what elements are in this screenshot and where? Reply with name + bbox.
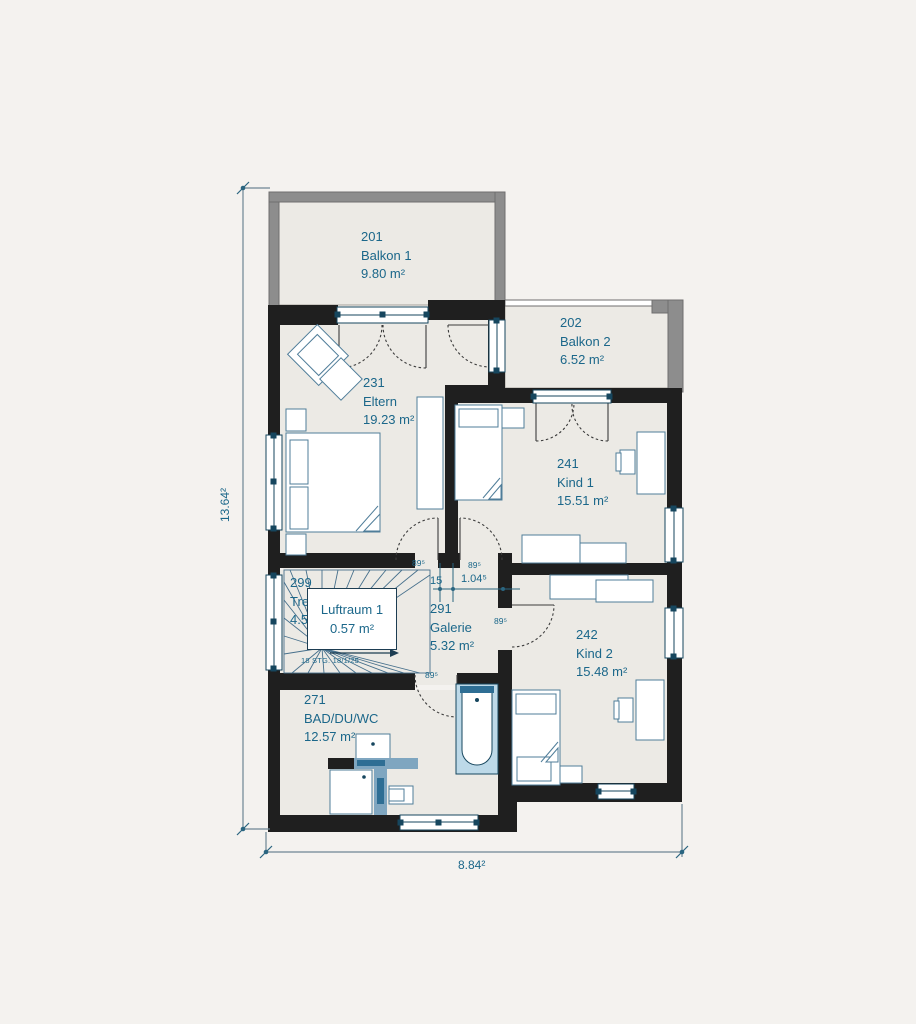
window-balkon2-kind1-door [531,390,612,403]
railing-balkon2-right [668,300,683,392]
window-kind2-south [596,784,636,799]
room-label-kind1: 241 Kind 1 15.51 m² [557,455,608,511]
room-area: 9.80 m² [361,265,412,284]
room-area: 6.52 m² [560,351,611,370]
room-label-balkon1: 201 Balkon 1 9.80 m² [361,228,412,284]
room-number: 202 [560,314,611,333]
room-label-galerie: 291 Galerie 5.32 m² [430,600,474,656]
nightstand [286,534,306,555]
dimension-door-kind2: 89⁵ [494,616,507,626]
fixture-label-band [357,760,385,766]
room-name: Luftraum 1 [321,602,383,617]
luftraum-box: Luftraum 1 0.57 m² [307,588,397,650]
room-name: Kind 1 [557,474,608,493]
wardrobe-eltern [417,397,443,509]
window-balkon1-door [335,307,429,323]
room-number: 231 [363,374,414,393]
railing-balkon1-right [495,192,505,306]
room-number: 291 [430,600,474,619]
room-area: 0.57 m² [330,621,374,636]
dresser-kind1 [522,535,580,563]
window-balkon2-eltern-door [489,318,505,373]
railing-balkon2-top [505,300,653,306]
room-area: 19.23 m² [363,411,414,430]
dresser-kind1 [580,543,626,563]
fixture-label-band [377,778,384,804]
dimension-total-height: 13.64² [218,488,232,522]
room-area: 15.48 m² [576,663,627,682]
dimension-total-width: 8.84² [458,858,485,872]
room-number: 242 [576,626,627,645]
dimension-door-eltern: 89⁵ [412,558,425,568]
room-number: 201 [361,228,412,247]
dimension-line-left [237,182,270,835]
bathtub [456,684,498,774]
room-name: Balkon 1 [361,247,412,266]
stairs-note: 18 STG. 18/1/25 [301,656,359,665]
nightstand [560,766,582,783]
room-name: BAD/DU/WC [304,710,378,729]
nightstand [286,409,306,431]
chair [618,698,633,722]
toilet [389,786,413,804]
room-label-balkon2: 202 Balkon 2 6.52 m² [560,314,611,370]
floor-plan-canvas: 201 Balkon 1 9.80 m² 202 Balkon 2 6.52 m… [0,0,916,1024]
room-number: 241 [557,455,608,474]
room-label-bad: 271 BAD/DU/WC 12.57 m² [304,691,378,747]
window-bad-south [398,815,479,830]
room-name: Eltern [363,393,414,412]
shower [330,770,372,814]
room-area: 5.32 m² [430,637,474,656]
dimension-door-bad: 89⁵ [425,670,438,680]
railing-balkon1-left [269,192,279,306]
window-kind1-east [665,506,683,563]
room-name: Balkon 2 [560,333,611,352]
shelf-kind2 [596,580,653,602]
dimension-passage-wall-left: 15 [430,575,442,587]
fixture-label-band [460,686,494,693]
chair-back [614,701,619,719]
dimension-passage-clear: 1.04⁵ [461,573,487,585]
chair [620,450,635,474]
chair-back [616,453,621,471]
window-treppe-west [266,573,282,671]
room-number: 271 [304,691,378,710]
nightstand [502,408,524,428]
room-label-kind2: 242 Kind 2 15.48 m² [576,626,627,682]
room-label-eltern: 231 Eltern 19.23 m² [363,374,414,430]
room-area: 12.57 m² [304,728,378,747]
window-eltern-west [266,433,282,531]
dimension-door-kind1: 89⁵ [468,560,481,570]
room-name: Galerie [430,619,474,638]
railing-balkon1-top [269,192,505,202]
window-kind2-east [665,606,683,659]
door-opening-floor [498,600,512,655]
room-area: 15.51 m² [557,492,608,511]
room-name: Kind 2 [576,645,627,664]
